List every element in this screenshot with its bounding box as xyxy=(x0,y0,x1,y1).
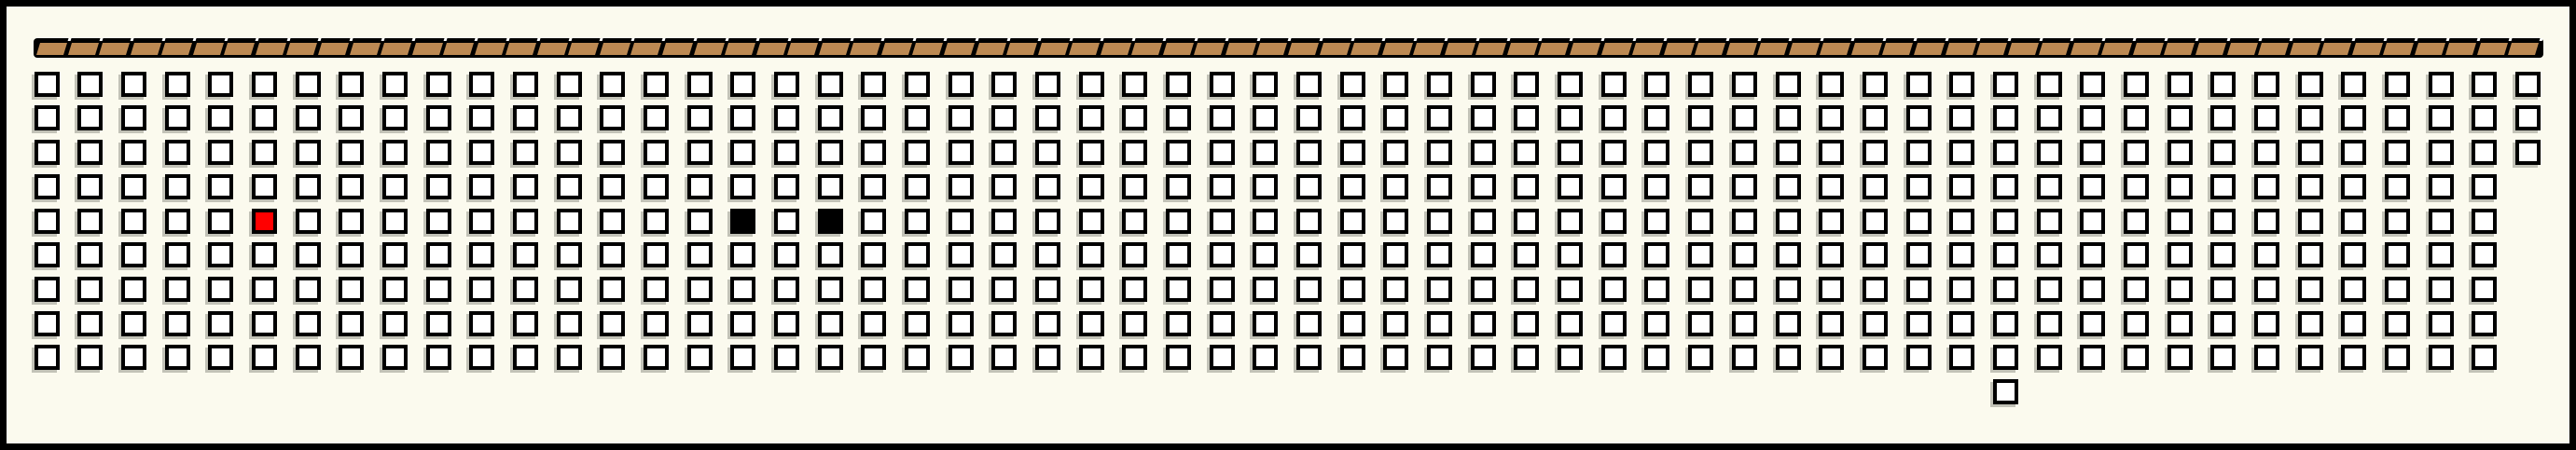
grid-cell[interactable] xyxy=(121,345,146,370)
grid-cell[interactable] xyxy=(2385,311,2410,336)
grid-cell[interactable] xyxy=(644,105,669,130)
grid-cell[interactable] xyxy=(774,72,799,97)
grid-cell[interactable] xyxy=(2124,345,2149,370)
grid-cell[interactable] xyxy=(2472,72,2497,97)
grid-cell[interactable] xyxy=(905,345,930,370)
grid-cell[interactable] xyxy=(1166,209,1191,234)
grid-cell[interactable] xyxy=(1776,345,1801,370)
grid-cell[interactable] xyxy=(2124,277,2149,302)
grid-cell[interactable] xyxy=(1210,242,1235,267)
grid-cell[interactable] xyxy=(35,311,60,336)
grid-cell[interactable] xyxy=(2080,277,2105,302)
grid-cell[interactable] xyxy=(861,345,886,370)
grid-cell[interactable] xyxy=(2080,72,2105,97)
grid-cell[interactable] xyxy=(2210,345,2236,370)
grid-cell[interactable] xyxy=(2472,209,2497,234)
grid-cell[interactable] xyxy=(1035,72,1060,97)
grid-cell[interactable] xyxy=(600,311,625,336)
grid-cell[interactable] xyxy=(1340,277,1365,302)
grid-cell[interactable] xyxy=(2037,311,2062,336)
grid-cell[interactable] xyxy=(644,209,669,234)
grid-cell[interactable] xyxy=(252,311,277,336)
grid-cell[interactable] xyxy=(1863,174,1888,199)
grid-cell[interactable] xyxy=(600,140,625,165)
grid-cell[interactable] xyxy=(426,174,451,199)
grid-cell[interactable] xyxy=(1166,311,1191,336)
grid-cell[interactable] xyxy=(1296,209,1322,234)
grid-cell[interactable] xyxy=(513,72,538,97)
grid-cell[interactable] xyxy=(1644,209,1669,234)
grid-cell[interactable] xyxy=(1732,209,1757,234)
grid-cell[interactable] xyxy=(1906,105,1932,130)
grid-cell[interactable] xyxy=(600,174,625,199)
grid-cell[interactable] xyxy=(991,105,1017,130)
grid-cell[interactable] xyxy=(1122,140,1147,165)
grid-cell[interactable] xyxy=(252,345,277,370)
grid-cell[interactable] xyxy=(426,72,451,97)
grid-cell[interactable] xyxy=(2080,174,2105,199)
grid-cell[interactable] xyxy=(1949,209,1974,234)
grid-cell[interactable] xyxy=(2298,140,2323,165)
grid-cell[interactable] xyxy=(1210,105,1235,130)
grid-cell[interactable] xyxy=(1863,209,1888,234)
grid-cell[interactable] xyxy=(382,174,408,199)
grid-cell[interactable] xyxy=(1427,140,1452,165)
grid-cell[interactable] xyxy=(252,174,277,199)
grid-cell[interactable] xyxy=(208,174,233,199)
grid-cell[interactable] xyxy=(2124,311,2149,336)
grid-cell[interactable] xyxy=(513,140,538,165)
grid-cell[interactable] xyxy=(2254,174,2279,199)
grid-cell[interactable] xyxy=(296,209,321,234)
grid-cell[interactable] xyxy=(1514,140,1539,165)
grid-cell[interactable] xyxy=(600,209,625,234)
grid-cell[interactable] xyxy=(1776,311,1801,336)
grid-cell[interactable] xyxy=(35,140,60,165)
grid-cell[interactable] xyxy=(2124,209,2149,234)
grid-cell[interactable] xyxy=(121,209,146,234)
grid-cell[interactable] xyxy=(1035,242,1060,267)
grid-cell[interactable] xyxy=(469,105,494,130)
grid-cell[interactable] xyxy=(1644,72,1669,97)
grid-cell[interactable] xyxy=(1863,242,1888,267)
grid-cell[interactable] xyxy=(1514,105,1539,130)
grid-cell[interactable] xyxy=(1558,345,1583,370)
grid-cell[interactable] xyxy=(1079,242,1104,267)
grid-cell[interactable] xyxy=(1688,174,1713,199)
grid-cell[interactable] xyxy=(644,72,669,97)
grid-cell[interactable] xyxy=(600,345,625,370)
grid-cell[interactable] xyxy=(2472,345,2497,370)
grid-cell[interactable] xyxy=(382,277,408,302)
grid-cell[interactable] xyxy=(1514,242,1539,267)
grid-cell[interactable] xyxy=(296,140,321,165)
grid-cell[interactable] xyxy=(165,209,190,234)
black-cell-1[interactable] xyxy=(730,209,755,234)
grid-cell[interactable] xyxy=(1079,345,1104,370)
grid-cell[interactable] xyxy=(2210,311,2236,336)
grid-cell[interactable] xyxy=(2080,311,2105,336)
grid-cell[interactable] xyxy=(2037,242,2062,267)
grid-cell[interactable] xyxy=(1296,72,1322,97)
grid-cell[interactable] xyxy=(296,345,321,370)
grid-cell[interactable] xyxy=(1514,209,1539,234)
grid-cell[interactable] xyxy=(1471,72,1496,97)
grid-cell[interactable] xyxy=(949,140,974,165)
grid-cell[interactable] xyxy=(2124,72,2149,97)
grid-cell[interactable] xyxy=(1122,174,1147,199)
grid-cell[interactable] xyxy=(2037,345,2062,370)
grid-cell[interactable] xyxy=(1949,140,1974,165)
grid-cell[interactable] xyxy=(905,140,930,165)
grid-cell[interactable] xyxy=(1253,242,1278,267)
grid-cell[interactable] xyxy=(1993,72,2018,97)
grid-cell[interactable] xyxy=(1906,140,1932,165)
grid-cell[interactable] xyxy=(861,311,886,336)
grid-cell[interactable] xyxy=(730,277,755,302)
grid-cell[interactable] xyxy=(2167,345,2193,370)
grid-cell[interactable] xyxy=(35,277,60,302)
grid-cell[interactable] xyxy=(644,345,669,370)
grid-cell[interactable] xyxy=(1383,174,1408,199)
grid-cell[interactable] xyxy=(730,242,755,267)
grid-cell[interactable] xyxy=(1210,209,1235,234)
grid-cell[interactable] xyxy=(1819,174,1844,199)
grid-cell[interactable] xyxy=(1035,174,1060,199)
grid-cell[interactable] xyxy=(2341,105,2366,130)
grid-cell[interactable] xyxy=(687,174,713,199)
grid-cell[interactable] xyxy=(2167,277,2193,302)
grid-cell[interactable] xyxy=(557,72,582,97)
grid-cell[interactable] xyxy=(1210,174,1235,199)
grid-cell[interactable] xyxy=(1471,105,1496,130)
grid-cell[interactable] xyxy=(1906,174,1932,199)
grid-cell[interactable] xyxy=(1166,105,1191,130)
grid-cell[interactable] xyxy=(2254,311,2279,336)
grid-cell[interactable] xyxy=(2254,345,2279,370)
grid-cell[interactable] xyxy=(1253,209,1278,234)
grid-cell[interactable] xyxy=(469,174,494,199)
grid-cell[interactable] xyxy=(208,140,233,165)
grid-cell[interactable] xyxy=(121,140,146,165)
grid-cell[interactable] xyxy=(121,277,146,302)
grid-cell[interactable] xyxy=(165,105,190,130)
grid-cell[interactable] xyxy=(1035,345,1060,370)
grid-cell[interactable] xyxy=(208,209,233,234)
grid-cell[interactable] xyxy=(2037,140,2062,165)
grid-cell[interactable] xyxy=(557,242,582,267)
grid-cell[interactable] xyxy=(382,140,408,165)
grid-cell[interactable] xyxy=(1601,140,1627,165)
grid-cell[interactable] xyxy=(774,174,799,199)
grid-cell[interactable] xyxy=(252,277,277,302)
grid-cell[interactable] xyxy=(644,242,669,267)
grid-cell[interactable] xyxy=(1644,174,1669,199)
grid-cell[interactable] xyxy=(1210,277,1235,302)
grid-cell[interactable] xyxy=(382,105,408,130)
grid-cell[interactable] xyxy=(1340,242,1365,267)
grid-cell[interactable] xyxy=(1688,277,1713,302)
grid-cell[interactable] xyxy=(557,277,582,302)
grid-cell[interactable] xyxy=(1863,72,1888,97)
grid-cell[interactable] xyxy=(2429,242,2454,267)
grid-cell[interactable] xyxy=(165,72,190,97)
grid-cell[interactable] xyxy=(2298,174,2323,199)
grid-cell[interactable] xyxy=(382,242,408,267)
grid-cell[interactable] xyxy=(2080,140,2105,165)
grid-cell[interactable] xyxy=(1819,72,1844,97)
grid-cell[interactable] xyxy=(1296,311,1322,336)
grid-cell[interactable] xyxy=(2298,105,2323,130)
grid-cell[interactable] xyxy=(2472,242,2497,267)
grid-cell[interactable] xyxy=(1471,277,1496,302)
grid-cell[interactable] xyxy=(905,105,930,130)
grid-cell[interactable] xyxy=(1079,311,1104,336)
grid-cell[interactable] xyxy=(513,311,538,336)
grid-cell[interactable] xyxy=(1427,174,1452,199)
grid-cell[interactable] xyxy=(1383,345,1408,370)
grid-cell[interactable] xyxy=(1776,140,1801,165)
grid-cell[interactable] xyxy=(1253,311,1278,336)
grid-cell[interactable] xyxy=(991,209,1017,234)
grid-cell[interactable] xyxy=(774,311,799,336)
grid-cell[interactable] xyxy=(991,242,1017,267)
grid-cell[interactable] xyxy=(2210,140,2236,165)
grid-cell[interactable] xyxy=(818,72,843,97)
grid-cell[interactable] xyxy=(2298,209,2323,234)
grid-cell[interactable] xyxy=(1253,72,1278,97)
grid-cell[interactable] xyxy=(2124,242,2149,267)
grid-cell[interactable] xyxy=(1340,311,1365,336)
grid-cell[interactable] xyxy=(687,311,713,336)
grid-cell[interactable] xyxy=(730,311,755,336)
grid-cell[interactable] xyxy=(1383,72,1408,97)
grid-cell[interactable] xyxy=(2515,72,2541,97)
grid-cell[interactable] xyxy=(687,209,713,234)
grid-cell[interactable] xyxy=(1601,242,1627,267)
grid-cell[interactable] xyxy=(1340,345,1365,370)
grid-cell[interactable] xyxy=(513,105,538,130)
grid-cell[interactable] xyxy=(1035,209,1060,234)
grid-cell[interactable] xyxy=(2210,277,2236,302)
grid-cell[interactable] xyxy=(557,311,582,336)
grid-cell[interactable] xyxy=(1210,345,1235,370)
grid-cell[interactable] xyxy=(1776,277,1801,302)
grid-cell[interactable] xyxy=(1993,311,2018,336)
grid-cell[interactable] xyxy=(2167,311,2193,336)
grid-cell[interactable] xyxy=(2298,72,2323,97)
grid-cell[interactable] xyxy=(1296,242,1322,267)
grid-cell[interactable] xyxy=(2429,345,2454,370)
grid-cell[interactable] xyxy=(1514,345,1539,370)
grid-cell[interactable] xyxy=(687,72,713,97)
grid-cell[interactable] xyxy=(1949,242,1974,267)
grid-cell[interactable] xyxy=(2167,242,2193,267)
grid-cell[interactable] xyxy=(382,72,408,97)
grid-cell[interactable] xyxy=(1993,140,2018,165)
grid-cell[interactable] xyxy=(1732,105,1757,130)
grid-cell[interactable] xyxy=(1993,105,2018,130)
grid-cell[interactable] xyxy=(905,209,930,234)
grid-cell[interactable] xyxy=(121,242,146,267)
grid-cell[interactable] xyxy=(1514,174,1539,199)
grid-cell[interactable] xyxy=(165,345,190,370)
grid-cell[interactable] xyxy=(2167,174,2193,199)
grid-cell[interactable] xyxy=(818,174,843,199)
grid-cell[interactable] xyxy=(426,277,451,302)
grid-cell[interactable] xyxy=(600,242,625,267)
grid-cell[interactable] xyxy=(1383,209,1408,234)
grid-cell[interactable] xyxy=(861,242,886,267)
grid-cell[interactable] xyxy=(2385,72,2410,97)
grid-cell[interactable] xyxy=(2080,105,2105,130)
grid-cell[interactable] xyxy=(1122,345,1147,370)
grid-cell[interactable] xyxy=(949,209,974,234)
grid-cell[interactable] xyxy=(1035,277,1060,302)
grid-cell[interactable] xyxy=(1558,242,1583,267)
grid-cell[interactable] xyxy=(1949,174,1974,199)
grid-cell[interactable] xyxy=(208,72,233,97)
grid-cell[interactable] xyxy=(2385,345,2410,370)
grid-cell[interactable] xyxy=(1688,105,1713,130)
grid-cell[interactable] xyxy=(949,72,974,97)
grid-cell[interactable] xyxy=(1776,72,1801,97)
grid-cell[interactable] xyxy=(1863,105,1888,130)
grid-cell[interactable] xyxy=(1819,105,1844,130)
grid-cell[interactable] xyxy=(687,242,713,267)
grid-cell[interactable] xyxy=(2429,174,2454,199)
grid-cell[interactable] xyxy=(1732,242,1757,267)
grid-cell[interactable] xyxy=(1863,140,1888,165)
grid-cell[interactable] xyxy=(2254,72,2279,97)
grid-cell[interactable] xyxy=(2254,140,2279,165)
grid-cell[interactable] xyxy=(730,72,755,97)
grid-cell[interactable] xyxy=(2254,242,2279,267)
grid-cell[interactable] xyxy=(1601,209,1627,234)
grid-cell[interactable] xyxy=(2037,105,2062,130)
grid-cell[interactable] xyxy=(1253,277,1278,302)
grid-cell[interactable] xyxy=(35,72,60,97)
grid-cell[interactable] xyxy=(861,140,886,165)
grid-cell[interactable] xyxy=(1035,140,1060,165)
grid-cell[interactable] xyxy=(2254,209,2279,234)
red-cell[interactable] xyxy=(252,209,277,234)
grid-cell[interactable] xyxy=(1166,72,1191,97)
grid-cell[interactable] xyxy=(1427,277,1452,302)
grid-cell[interactable] xyxy=(1471,311,1496,336)
grid-cell[interactable] xyxy=(818,140,843,165)
grid-cell[interactable] xyxy=(35,105,60,130)
grid-cell[interactable] xyxy=(2298,242,2323,267)
grid-cell[interactable] xyxy=(121,105,146,130)
grid-cell[interactable] xyxy=(2341,242,2366,267)
grid-cell[interactable] xyxy=(1079,105,1104,130)
grid-cell[interactable] xyxy=(1949,345,1974,370)
grid-cell[interactable] xyxy=(2167,105,2193,130)
grid-cell[interactable] xyxy=(905,277,930,302)
grid-cell[interactable] xyxy=(426,140,451,165)
grid-cell[interactable] xyxy=(991,277,1017,302)
grid-cell[interactable] xyxy=(818,105,843,130)
grid-cell[interactable] xyxy=(426,345,451,370)
grid-cell[interactable] xyxy=(861,105,886,130)
grid-cell[interactable] xyxy=(208,242,233,267)
grid-cell[interactable] xyxy=(513,174,538,199)
grid-cell[interactable] xyxy=(949,174,974,199)
grid-cell[interactable] xyxy=(1514,277,1539,302)
grid-cell[interactable] xyxy=(2429,277,2454,302)
grid-cell[interactable] xyxy=(1471,140,1496,165)
grid-cell[interactable] xyxy=(1644,140,1669,165)
grid-cell[interactable] xyxy=(1644,311,1669,336)
grid-cell[interactable] xyxy=(382,209,408,234)
grid-cell[interactable] xyxy=(1122,105,1147,130)
grid-cell[interactable] xyxy=(1253,345,1278,370)
grid-cell[interactable] xyxy=(1166,140,1191,165)
grid-cell[interactable] xyxy=(1210,311,1235,336)
grid-cell[interactable] xyxy=(2472,140,2497,165)
grid-cell[interactable] xyxy=(2472,311,2497,336)
grid-cell[interactable] xyxy=(77,242,103,267)
grid-cell[interactable] xyxy=(1688,345,1713,370)
grid-cell[interactable] xyxy=(2341,72,2366,97)
grid-cell[interactable] xyxy=(991,72,1017,97)
grid-cell[interactable] xyxy=(1079,277,1104,302)
grid-cell[interactable] xyxy=(2472,174,2497,199)
grid-cell[interactable] xyxy=(1210,72,1235,97)
grid-cell[interactable] xyxy=(2298,345,2323,370)
grid-cell[interactable] xyxy=(2037,209,2062,234)
grid-cell[interactable] xyxy=(2210,242,2236,267)
grid-cell[interactable] xyxy=(296,311,321,336)
grid-cell[interactable] xyxy=(1079,209,1104,234)
grid-cell[interactable] xyxy=(861,209,886,234)
grid-cell[interactable] xyxy=(600,72,625,97)
grid-cell[interactable] xyxy=(2515,140,2541,165)
grid-cell[interactable] xyxy=(774,242,799,267)
grid-cell[interactable] xyxy=(949,242,974,267)
grid-cell[interactable] xyxy=(644,311,669,336)
grid-cell[interactable] xyxy=(121,174,146,199)
grid-cell[interactable] xyxy=(991,174,1017,199)
grid-cell[interactable] xyxy=(1906,311,1932,336)
grid-cell[interactable] xyxy=(208,345,233,370)
grid-cell[interactable] xyxy=(2385,277,2410,302)
grid-cell[interactable] xyxy=(35,242,60,267)
grid-cell[interactable] xyxy=(730,174,755,199)
grid-cell[interactable] xyxy=(1383,105,1408,130)
grid-cell[interactable] xyxy=(165,174,190,199)
grid-cell[interactable] xyxy=(644,277,669,302)
grid-cell[interactable] xyxy=(469,311,494,336)
grid-cell[interactable] xyxy=(296,242,321,267)
grid-cell[interactable] xyxy=(2298,311,2323,336)
grid-cell[interactable] xyxy=(77,277,103,302)
grid-cell[interactable] xyxy=(513,345,538,370)
grid-cell[interactable] xyxy=(2429,311,2454,336)
grid-cell[interactable] xyxy=(2341,174,2366,199)
grid-cell[interactable] xyxy=(949,105,974,130)
grid-cell[interactable] xyxy=(687,105,713,130)
grid-cell[interactable] xyxy=(1819,140,1844,165)
grid-cell[interactable] xyxy=(1340,140,1365,165)
grid-cell[interactable] xyxy=(1644,105,1669,130)
grid-cell[interactable] xyxy=(557,345,582,370)
grid-cell[interactable] xyxy=(1383,311,1408,336)
grid-cell[interactable] xyxy=(513,242,538,267)
grid-cell[interactable] xyxy=(469,72,494,97)
grid-cell[interactable] xyxy=(339,174,364,199)
